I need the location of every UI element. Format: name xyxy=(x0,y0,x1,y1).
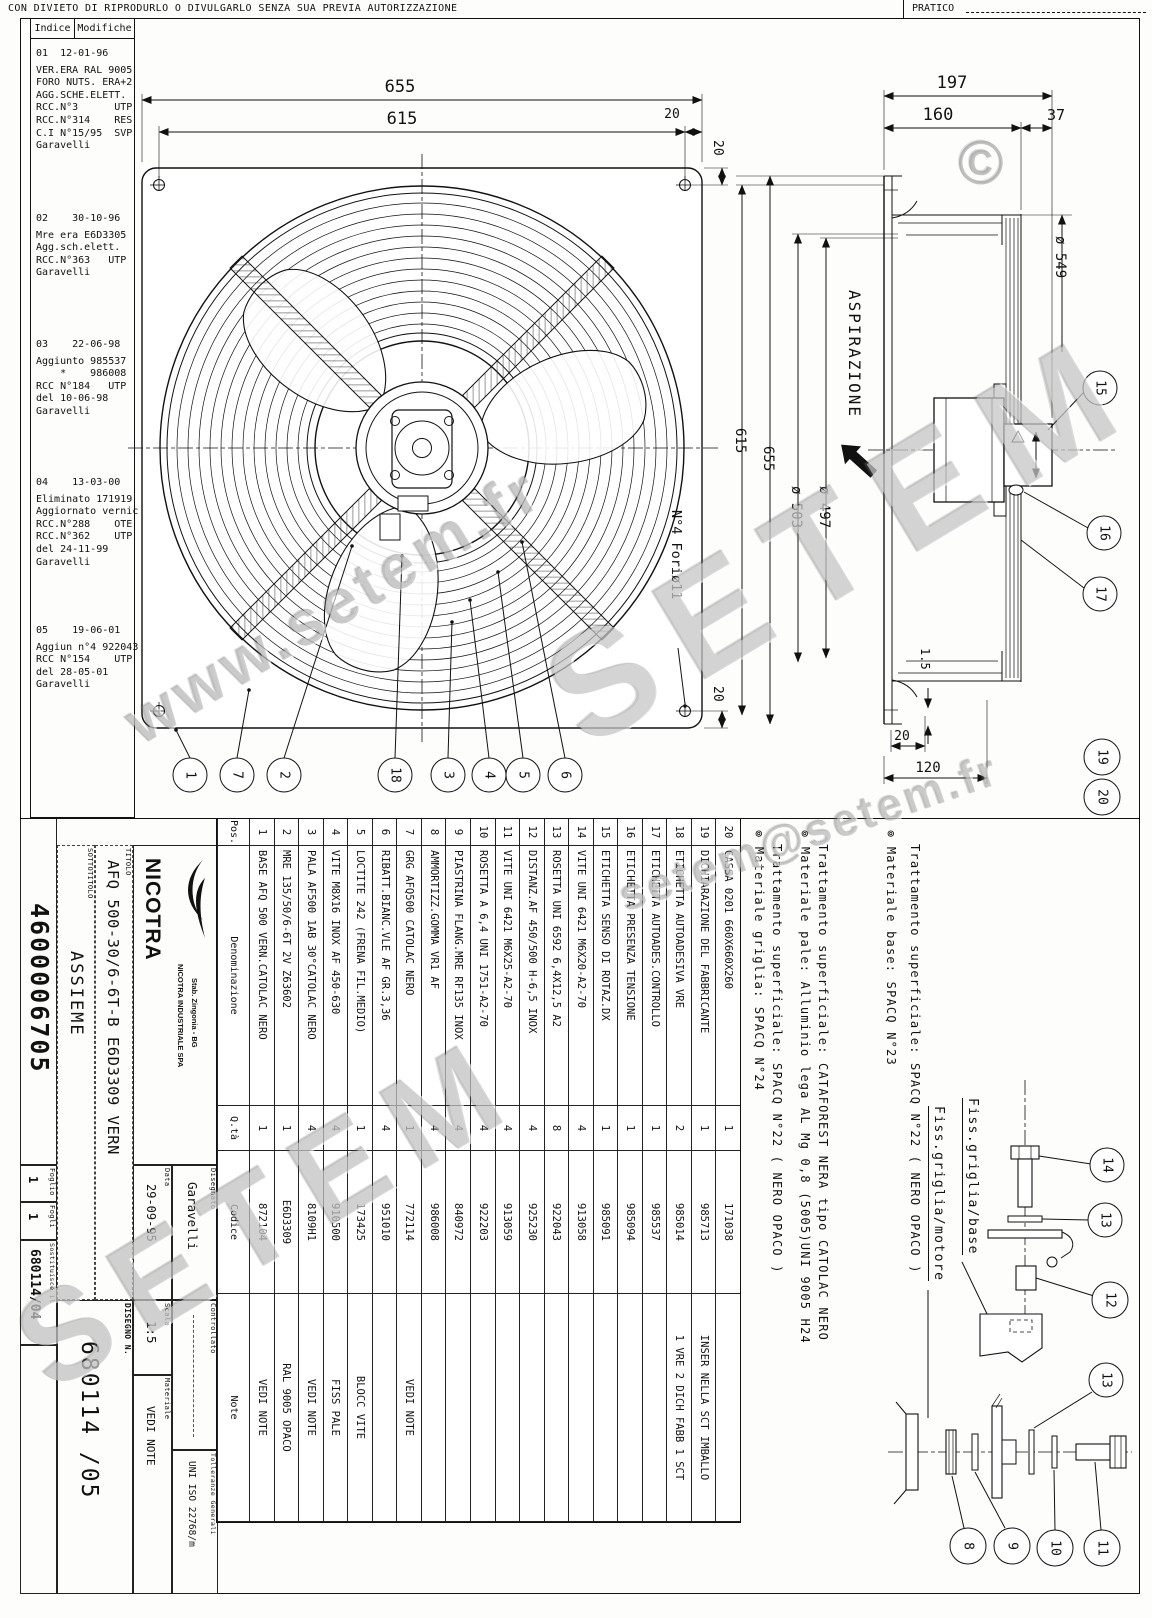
svg-text:13: 13 xyxy=(1098,1212,1113,1228)
bom-header-note: Note xyxy=(217,1294,249,1522)
svg-text:16: 16 xyxy=(1097,525,1112,541)
revision-entry: 05 19-06-01Aggiun n°4 922043 RCC N°154 U… xyxy=(36,625,138,692)
washer-13 xyxy=(1029,1430,1034,1474)
bolt-shaft xyxy=(1018,1159,1032,1207)
note-base-l1: ⊚ Materiale base: SPACQ N°23 xyxy=(884,830,898,1066)
bom-cell-qta: 1 xyxy=(593,1106,618,1151)
dim-depth-body: 160 xyxy=(923,105,954,125)
dim-front-edge-bottom: 20 xyxy=(710,686,725,702)
svg-text:15: 15 xyxy=(1093,380,1108,396)
bom-cell-den: CASSA 0201 660X660X260 xyxy=(715,846,740,1106)
foglio-cell: Foglio 1 xyxy=(20,1165,57,1202)
bom-cell-den: BASE AFQ 500 VERN.CATOLAC NERO xyxy=(249,846,274,1106)
bom-cell-qta: 1 xyxy=(691,1106,716,1151)
scala-value: 1:5 xyxy=(144,1321,159,1344)
bom-cell-pos: 11 xyxy=(495,819,520,846)
scala-cell: Scala 1:5 xyxy=(133,1300,172,1375)
bom-cell-note xyxy=(445,1294,470,1522)
bom-cell-qta: 1 xyxy=(642,1106,667,1151)
bolt-shaft-11 xyxy=(1076,1444,1110,1460)
bom-cell-cod: 925230 xyxy=(519,1151,544,1294)
bom-cell-den: ETICHETTA SENSO DI ROTAZ.DX xyxy=(593,846,618,1106)
spacer xyxy=(1016,1266,1036,1290)
dim-side-height: 655 xyxy=(760,446,776,471)
bom-cell-cod: 8109H1 xyxy=(298,1151,323,1294)
company-cell: NICOTRA NICOTRA INDUSTRIALE SPA Stab. Zi… xyxy=(133,845,218,1165)
bom-cell-pos: 2 xyxy=(274,819,299,846)
washer xyxy=(1008,1216,1042,1222)
controllato-blank-line xyxy=(193,1315,194,1437)
bom-cell-pos: 18 xyxy=(666,819,691,846)
dim-front-edge-top: 20 xyxy=(710,140,725,156)
svg-text:8: 8 xyxy=(961,1542,976,1550)
bom-cell-den: ETICHETTA PRESENZA TENSIONE xyxy=(617,846,642,1106)
svg-text:12: 12 xyxy=(1103,1292,1118,1308)
bom-cell-qta: 1 xyxy=(715,1106,740,1151)
dim-side-holes: 615 xyxy=(732,428,748,453)
bom-cell-qta: 1 xyxy=(249,1106,274,1151)
bom-cell-cod: 985014 xyxy=(666,1151,691,1294)
bom-cell-den: ROSETTA UNI 6592 6,4X12,5 A2 xyxy=(544,846,569,1106)
bom-cell-den: DISTANZ.AF 450/500 H-6,5 INOX xyxy=(519,846,544,1106)
bom-cell-cod: 840972 xyxy=(445,1151,470,1294)
svg-text:3: 3 xyxy=(441,771,456,779)
bom-cell-note: BLOCC VITE xyxy=(347,1294,372,1522)
bom-cell-qta: 1 xyxy=(274,1106,299,1151)
bom-cell-qta: 4 xyxy=(298,1106,323,1151)
svg-text:11: 11 xyxy=(1095,1540,1110,1556)
bom-cell-pos: 6 xyxy=(372,819,397,846)
bom-cell-note: VEDI NOTE xyxy=(396,1294,421,1522)
bom-cell-qta: 1 xyxy=(347,1106,372,1151)
bom-cell-den: PALA AF500 1AB 30°CATOLAC NERO xyxy=(298,846,323,1106)
note-pale-l1: ⊚ Materiale pale: Alluminio lega AL Mg 0… xyxy=(798,830,812,1344)
bom-cell-qta: 4 xyxy=(445,1106,470,1151)
bom-cell-note xyxy=(421,1294,446,1522)
scala-label: Scala xyxy=(163,1303,171,1326)
note-base-l2: Trattamento superficiale: SPACQ N°22 ( N… xyxy=(908,844,922,1274)
bom-cell-cod: 951010 xyxy=(372,1151,397,1294)
foglio-label: Foglio xyxy=(48,1168,56,1196)
revision-table-header: Indice Modifiche xyxy=(31,19,134,39)
dim-flange: 1.5 xyxy=(918,648,932,670)
sostituisce-label: Sostituisce il xyxy=(48,1243,56,1303)
dim-front-holes: 615 xyxy=(387,109,418,129)
bom-header-qta: Q.tà xyxy=(217,1106,249,1151)
bom-cell-note xyxy=(642,1294,667,1522)
sottotitolo-label: SOTTOTITOLO xyxy=(86,848,94,899)
bom-cell-den: ROSETTA A 6,4 UNI 1751-A2-70 xyxy=(470,846,495,1106)
materiale-cell: Materiale VEDI NOTE xyxy=(133,1375,172,1594)
bom-cell-cod: 922203 xyxy=(470,1151,495,1294)
disegnato-cell: Disegnato Garavelli xyxy=(172,1165,218,1300)
bom-cell-pos: 14 xyxy=(568,819,593,846)
dim-d503: ø 503 xyxy=(788,486,804,528)
bom-cell-pos: 8 xyxy=(421,819,446,846)
bom-cell-pos: 19 xyxy=(691,819,716,846)
bom-header-den: Denominazione xyxy=(217,846,249,1106)
label-fiss-griglia-motore: Fiss.griglia/motore xyxy=(928,1106,946,1281)
fogli-value: 1 xyxy=(26,1213,40,1220)
svg-text:10: 10 xyxy=(1048,1540,1063,1556)
aspirazione-arrow-icon xyxy=(833,436,882,483)
bom-cell-note: VEDI NOTE xyxy=(298,1294,323,1522)
bom-cell-den: PIASTRINA FLANG.MRE RF135 INOX xyxy=(445,846,470,1106)
bom-cell-pos: 13 xyxy=(544,819,569,846)
bom-cell-qta: 4 xyxy=(323,1106,348,1151)
grille-clip xyxy=(988,1230,1062,1238)
titolo-value: AFQ 500-30/6-6T-B E6D3309 VERN xyxy=(104,860,122,1155)
views-linework: 655 615 20 20 20 N°4 Foriø11 xyxy=(0,0,1152,818)
bom-cell-note xyxy=(470,1294,495,1522)
bolt-head-11 xyxy=(1110,1436,1126,1468)
bom-cell-pos: 4 xyxy=(323,819,348,846)
bom-cell-note xyxy=(544,1294,569,1522)
bom-cell-note xyxy=(495,1294,520,1522)
cable-gland xyxy=(1009,485,1023,495)
bom-cell-qta: 4 xyxy=(568,1106,593,1151)
bom-cell-pos: 5 xyxy=(347,819,372,846)
bom-cell-qta: 4 xyxy=(421,1106,446,1151)
bom-cell-den: DICHIARAZIONE DEL FABBRICANTE xyxy=(691,846,716,1106)
bom-cell-den: ETICHETTA AUTOADES.CONTROLLO xyxy=(642,846,667,1106)
bom-cell-cod: 913059 xyxy=(495,1151,520,1294)
data-cell: Data 29-09-95 xyxy=(133,1165,172,1300)
bolt-head xyxy=(1011,1146,1039,1159)
foglio-value: 1 xyxy=(26,1176,40,1183)
tolleranze-value: UNI ISO 22768/m xyxy=(186,1461,197,1547)
bom-cell-note: FISS PALE xyxy=(323,1294,348,1522)
bom-cell-den: VITE M8X16 INOX AF 450-630 xyxy=(323,846,348,1106)
tolleranze-cell: Tolleranze Generali UNI ISO 22768/m xyxy=(172,1450,218,1594)
bom-cell-cod: 985094 xyxy=(617,1151,642,1294)
bom-cell-note xyxy=(593,1294,618,1522)
bom-cell-qta: 1 xyxy=(617,1106,642,1151)
svg-text:4: 4 xyxy=(482,771,497,779)
sottotitolo-cell: SOTTOTITOLO ASSIEME xyxy=(57,845,95,1300)
bom-cell-cod: 913058 xyxy=(568,1151,593,1294)
clip-hole xyxy=(1047,1257,1057,1267)
dim-foot-total: 120 xyxy=(915,760,940,776)
bom-cell-cod: 922043 xyxy=(544,1151,569,1294)
data-label: Data xyxy=(163,1168,171,1186)
dim-ring-od: ø 549 xyxy=(1052,236,1068,278)
svg-text:14: 14 xyxy=(1100,1157,1115,1173)
base-bracket xyxy=(906,1414,918,1490)
bom-cell-den: VITE UNI 6421 M6X25-A2-70 xyxy=(495,846,520,1106)
controllato-cell: Controllato xyxy=(172,1300,218,1450)
side-view: 197 160 37 ø 549 615 655 ø 503 xyxy=(732,73,1121,815)
fogli-cell: Fogli 1 xyxy=(20,1202,57,1240)
bom-header-cod: Codice xyxy=(217,1151,249,1294)
dim-depth-total: 197 xyxy=(937,73,968,93)
bom-cell-pos: 7 xyxy=(396,819,421,846)
engineering-drawing-sheet: CON DIVIETO DI RIPRODURLO O DIVULGARLO S… xyxy=(0,0,1152,1618)
bom-cell-den: ETICHETTA AUTOADESIVA VRE xyxy=(666,846,691,1106)
bom-cell-pos: 9 xyxy=(445,819,470,846)
bom-cell-qta: 2 xyxy=(666,1106,691,1151)
front-view: 655 615 20 20 20 N°4 Foriø11 xyxy=(128,77,728,792)
revision-table: Indice Modifiche 01 12-01-96VER.ERA RAL … xyxy=(30,18,135,818)
disegno-label: DISEGNO N. xyxy=(123,1303,132,1355)
bom-cell-note: 1 VRE 2 DICH FABB 1 SCT xyxy=(666,1294,691,1522)
bom-cell-note: INSER NELLA SCT IMBALLO xyxy=(691,1294,716,1522)
fogli-label: Fogli xyxy=(48,1205,56,1228)
bom-cell-pos: 16 xyxy=(617,819,642,846)
label-fiss-griglia-base: Fiss.griglia/base xyxy=(962,1098,980,1255)
bom-cell-note xyxy=(372,1294,397,1522)
revision-col-modifiche: Modifiche xyxy=(75,19,134,38)
flange-plate xyxy=(972,1434,978,1470)
bom-cell-den: LOCTITE 242 (FRENA FIL.MEDIO) xyxy=(347,846,372,1106)
svg-text:5: 5 xyxy=(516,771,531,779)
svg-text:13: 13 xyxy=(1099,1372,1114,1388)
bom-cell-pos: 3 xyxy=(298,819,323,846)
note-pale-l2: Trattamento superficiale: CATAFOREST NER… xyxy=(816,844,830,1341)
bom-cell-qta: 4 xyxy=(495,1106,520,1151)
nameplate xyxy=(398,496,428,511)
bracket-foot xyxy=(1002,1440,1016,1464)
terminal-box xyxy=(1004,424,1052,495)
bom-cell-note xyxy=(568,1294,593,1522)
bom-cell-cod: 985713 xyxy=(691,1151,716,1294)
note-griglia-l1: ⊚ Materiale griglia: SPACQ N°24 xyxy=(752,830,766,1091)
bom-table: 20CASSA 0201 660X660X2601171038 19DICHIA… xyxy=(216,818,741,1523)
internal-code-cell: 4600006705 xyxy=(20,818,57,1165)
svg-text:2: 2 xyxy=(277,771,292,779)
titolo-cell: TITOLO AFQ 500-30/6-6T-B E6D3309 VERN xyxy=(95,845,133,1300)
sottotitolo-value: ASSIEME xyxy=(66,951,86,1037)
bom-cell-den: AMMORTIZZ.GOMMA VR1 AF xyxy=(421,846,446,1106)
bom-cell-pos: 15 xyxy=(593,819,618,846)
bom-cell-pos: 10 xyxy=(470,819,495,846)
revision-entry: 03 22-06-98Aggiunto 985537 * 986008 RCC … xyxy=(36,339,126,419)
motor-section xyxy=(934,398,1004,502)
bom-cell-cod: 986008 xyxy=(421,1151,446,1294)
disegnato-value: Garavelli xyxy=(185,1182,200,1250)
label-holes-callout: N°4 Foriø11 xyxy=(668,510,684,599)
revision-entry: 01 12-01-96VER.ERA RAL 9005 FORO NUTS. E… xyxy=(36,48,132,153)
dim-d497: ø 497 xyxy=(816,486,832,528)
note-griglia-l2: Trattamento superficiale: SPACQ N°22 ( N… xyxy=(770,844,784,1274)
bom-cell-den: RIBATT.BIANC.VLE AF GR.3,36 xyxy=(372,846,397,1106)
bom-cell-note xyxy=(715,1294,740,1522)
bom-cell-den: MRE 135/50/6-6T 2V Z63602 xyxy=(274,846,299,1106)
dim-front-edge: 20 xyxy=(664,107,680,122)
bom-cell-qta: 8 xyxy=(544,1106,569,1151)
detail-grille-base: 14 13 12 xyxy=(962,1080,1128,1362)
internal-code: 4600006705 xyxy=(25,903,54,1074)
bom-cell-den: VITE UNI 6421 M6X20-A2-70 xyxy=(568,846,593,1106)
materiale-label: Materiale xyxy=(163,1378,171,1420)
svg-text:1: 1 xyxy=(183,771,198,779)
svg-text:9: 9 xyxy=(1005,1542,1020,1550)
bom-cell-qta: 1 xyxy=(396,1106,421,1151)
label-aspirazione: ASPIRAZIONE xyxy=(845,290,864,418)
data-value: 29-09-95 xyxy=(144,1184,158,1242)
bom-cell-pos: 1 xyxy=(249,819,274,846)
disegno-number: 680114 /05 xyxy=(76,1341,102,1499)
dim-front-width: 655 xyxy=(385,77,416,97)
company-line2: Stab. Zingonia - BG xyxy=(190,978,199,1048)
nicotra-logo-icon xyxy=(175,856,209,942)
svg-text:17: 17 xyxy=(1093,586,1108,602)
company-line1: NICOTRA INDUSTRIALE SPA xyxy=(176,964,185,1067)
bom-cell-cod: 173425 xyxy=(347,1151,372,1294)
svg-text:6: 6 xyxy=(558,771,573,779)
bom-cell-qta: 4 xyxy=(372,1106,397,1151)
titolo-label: TITOLO xyxy=(124,848,132,876)
revision-col-indice: Indice xyxy=(31,19,75,38)
bom-cell-pos: 12 xyxy=(519,819,544,846)
materiale-value: VEDI NOTE xyxy=(144,1406,157,1466)
sostituisce-value: 680114/04 xyxy=(27,1249,42,1319)
company-name: NICOTRA xyxy=(140,858,164,961)
sostituisce-cell: Sostituisce il 680114/04 xyxy=(20,1240,57,1345)
base-corner xyxy=(980,1314,1042,1362)
revision-entry: 04 13-03-00Eliminato 171919 Aggiornato v… xyxy=(36,477,138,569)
disegno-cell: DISEGNO N. 680114 /05 xyxy=(57,1300,133,1594)
bom-cell-cod: 171038 xyxy=(715,1151,740,1294)
bom-cell-cod: 985537 xyxy=(642,1151,667,1294)
washer-10 xyxy=(1052,1436,1057,1468)
spare-cell xyxy=(20,1345,57,1594)
bom-cell-cod: 910500 xyxy=(323,1151,348,1294)
bom-cell-cod: 772114 xyxy=(396,1151,421,1294)
svg-text:18: 18 xyxy=(388,767,403,783)
motor-bracket xyxy=(992,1406,1002,1498)
bom-cell-note: VEDI NOTE xyxy=(249,1294,274,1522)
dim-foot: 20 xyxy=(894,729,910,744)
bom-cell-pos: 20 xyxy=(715,819,740,846)
bom-cell-note: RAL 9005 OPACO xyxy=(274,1294,299,1522)
bom-cell-pos: 17 xyxy=(642,819,667,846)
bom-cell-note xyxy=(617,1294,642,1522)
bom-cell-note xyxy=(519,1294,544,1522)
svg-text:19: 19 xyxy=(1095,749,1110,765)
bom-cell-qta: 4 xyxy=(470,1106,495,1151)
bom-cell-den: GRG AFQ500 CATOLAC NERO xyxy=(396,846,421,1106)
dim-depth-box: 37 xyxy=(1047,106,1065,124)
bom-cell-cod: 985091 xyxy=(593,1151,618,1294)
bom-header-pos: Pos. xyxy=(217,819,249,846)
bom-cell-cod: E6D3309 xyxy=(274,1151,299,1294)
bom-cell-cod: 872104 xyxy=(249,1151,274,1294)
bom-cell-qta: 4 xyxy=(519,1106,544,1151)
revision-entry: 02 30-10-96Mre era E6D3305 Agg.sch.elett… xyxy=(36,213,126,280)
rubber-mount xyxy=(946,1430,956,1474)
svg-text:20: 20 xyxy=(1095,789,1110,805)
capacitor-box xyxy=(380,514,400,540)
svg-text:7: 7 xyxy=(230,771,245,779)
